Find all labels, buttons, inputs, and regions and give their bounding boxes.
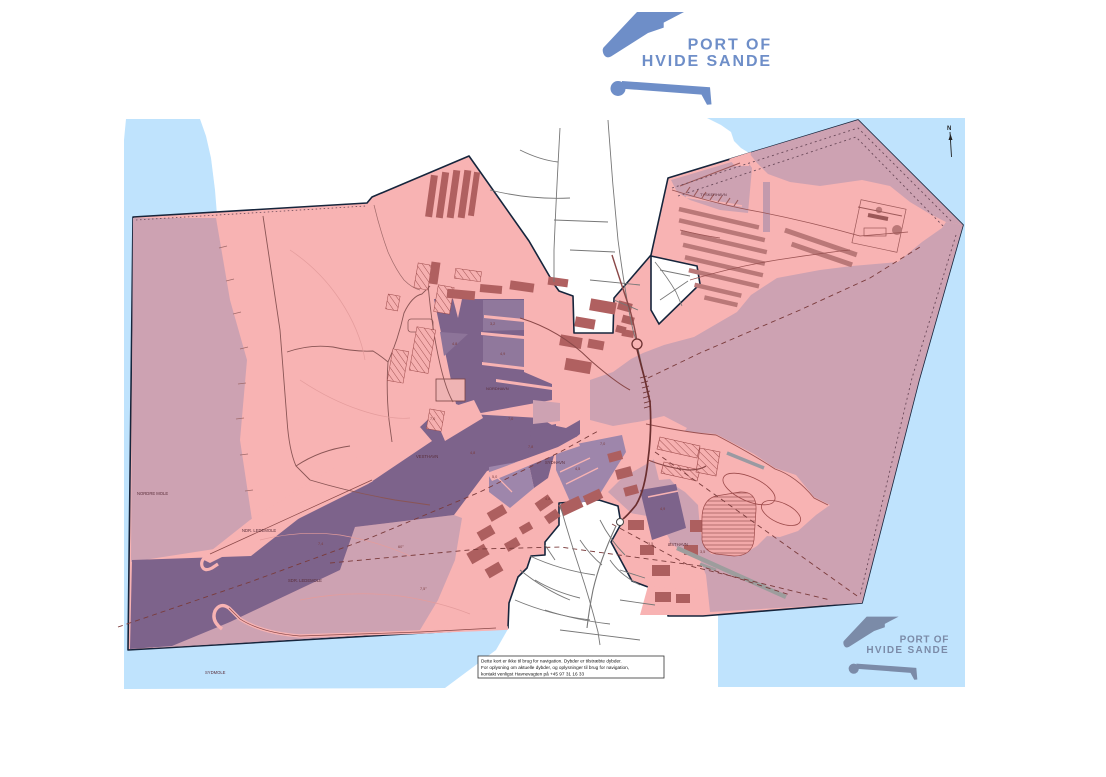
svg-text:4,9: 4,9: [500, 352, 505, 356]
svg-text:3,5: 3,5: [648, 542, 653, 546]
svg-text:PORT OF: PORT OF: [688, 37, 772, 54]
svg-text:For oplysning om aktuelle dybd: For oplysning om aktuelle dybder, og opl…: [481, 665, 629, 670]
svg-text:4,8: 4,8: [470, 451, 475, 455]
svg-text:60°: 60°: [398, 545, 404, 549]
svg-text:NORDHAVN: NORDHAVN: [486, 386, 509, 391]
svg-text:4,9: 4,9: [660, 507, 665, 511]
svg-text:kontakt venligst Havnevagten p: kontakt venligst Havnevagten på +45 97 3…: [481, 671, 584, 677]
svg-text:3,5: 3,5: [700, 550, 705, 554]
svg-text:TYSKERHAVN: TYSKERHAVN: [700, 192, 727, 197]
svg-text:7,5°: 7,5°: [420, 587, 427, 591]
svg-text:N: N: [947, 126, 951, 132]
svg-text:3,2: 3,2: [490, 322, 495, 326]
svg-text:HVIDE SANDE: HVIDE SANDE: [642, 53, 772, 70]
svg-text:7,8: 7,8: [528, 445, 533, 449]
svg-text:7,0: 7,0: [600, 442, 605, 446]
svg-text:SDR. LEDEMOLE: SDR. LEDEMOLE: [288, 578, 322, 583]
svg-text:7,0: 7,0: [508, 417, 513, 421]
svg-text:7,0: 7,0: [430, 417, 435, 421]
svg-text:7,4: 7,4: [318, 542, 323, 546]
svg-text:4,8: 4,8: [545, 497, 550, 501]
svg-text:NORDRE MOLE: NORDRE MOLE: [137, 491, 168, 496]
svg-text:VESTHAVN: VESTHAVN: [416, 454, 438, 459]
svg-text:Dette kort er ikke til brug fo: Dette kort er ikke til brug for navigati…: [481, 659, 622, 664]
svg-text:SYDMOLE: SYDMOLE: [205, 670, 226, 675]
svg-text:HVIDE SANDE: HVIDE SANDE: [866, 645, 949, 656]
svg-text:SYDHAVN: SYDHAVN: [545, 460, 565, 465]
svg-text:4,5: 4,5: [575, 467, 580, 471]
svg-text:PORT OF: PORT OF: [900, 635, 949, 646]
svg-text:ØSTHAVN: ØSTHAVN: [668, 542, 688, 547]
svg-text:NDR. LEDEMOLE: NDR. LEDEMOLE: [242, 528, 276, 533]
svg-text:5,0: 5,0: [492, 475, 497, 479]
svg-text:4,8: 4,8: [452, 342, 457, 346]
